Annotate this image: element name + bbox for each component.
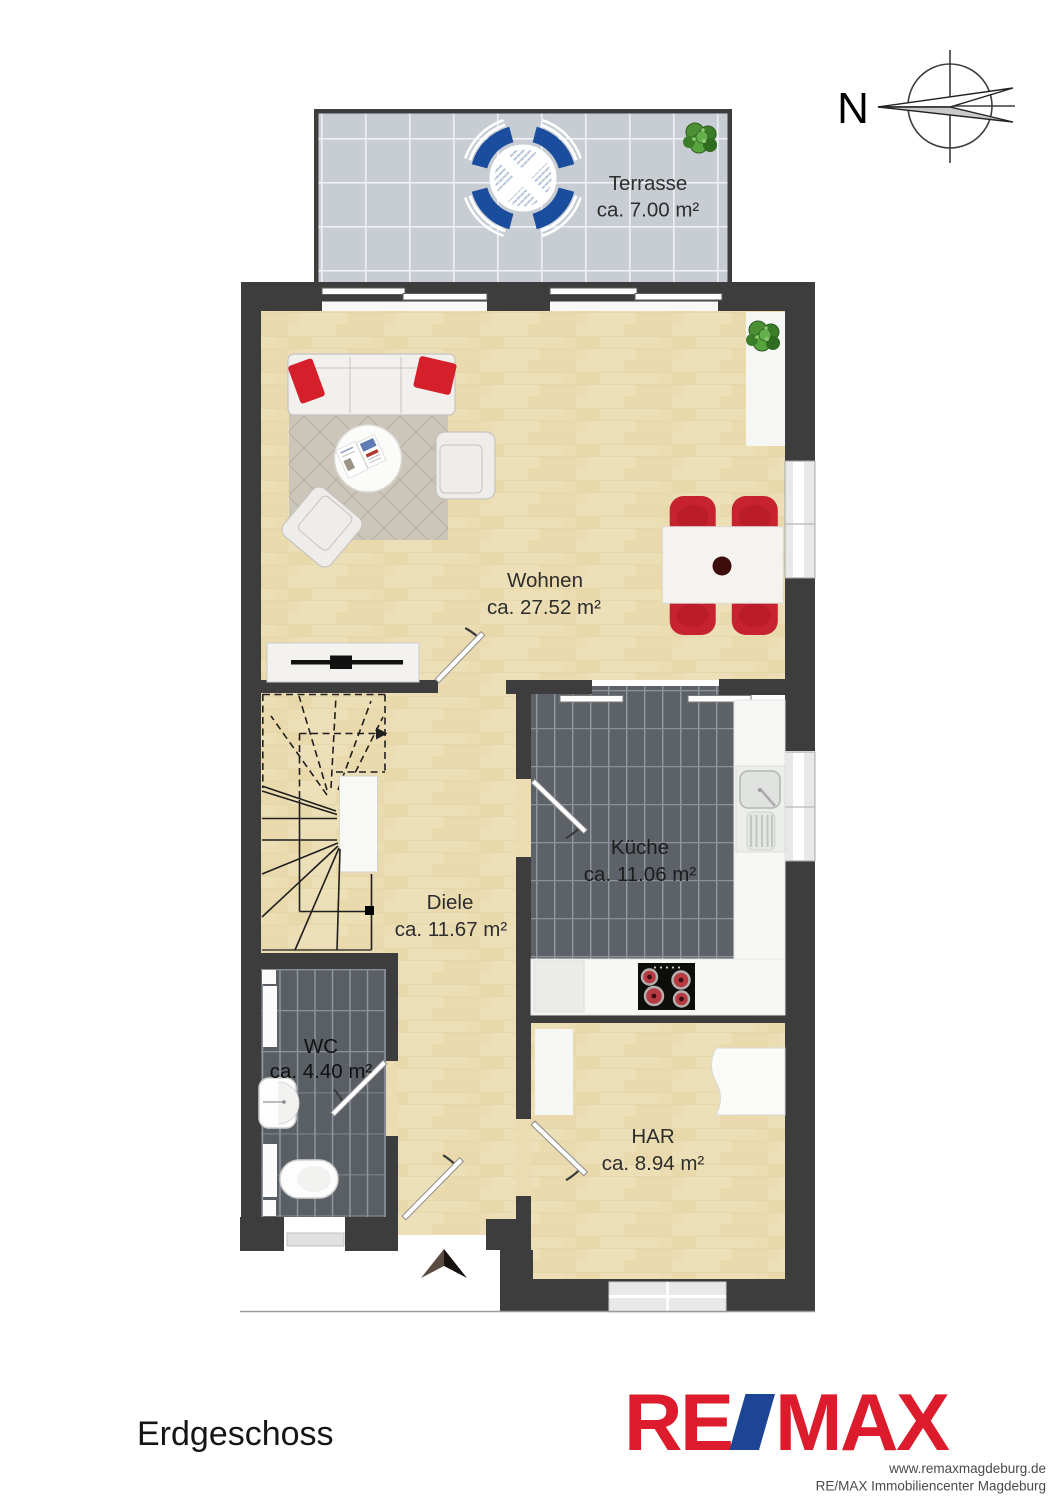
svg-text:Küche: Küche — [611, 836, 669, 859]
svg-text:RE: RE — [624, 1378, 732, 1468]
svg-text:N: N — [837, 84, 869, 133]
svg-text:ca. 7.00 m²: ca. 7.00 m² — [597, 199, 700, 222]
svg-text:HAR: HAR — [631, 1125, 674, 1148]
svg-text:Erdgeschoss: Erdgeschoss — [137, 1415, 334, 1453]
svg-text:WC: WC — [304, 1035, 338, 1058]
svg-text:Diele: Diele — [427, 891, 474, 914]
svg-text:ca. 4.40 m²: ca. 4.40 m² — [270, 1060, 373, 1083]
svg-text:MAX: MAX — [775, 1378, 950, 1468]
svg-text:Terrasse: Terrasse — [609, 172, 688, 195]
svg-text:ca. 11.67 m²: ca. 11.67 m² — [395, 918, 508, 941]
svg-text:RE/MAX Immobiliencenter Magdeb: RE/MAX Immobiliencenter Magdeburg — [816, 1479, 1046, 1494]
svg-text:www.remaxmagdeburg.de: www.remaxmagdeburg.de — [888, 1461, 1046, 1476]
svg-text:Wohnen: Wohnen — [507, 569, 583, 592]
svg-text:ca. 11.06 m²: ca. 11.06 m² — [584, 863, 697, 886]
svg-text:ca. 27.52 m²: ca. 27.52 m² — [487, 596, 601, 619]
svg-text:ca. 8.94 m²: ca. 8.94 m² — [602, 1152, 705, 1175]
